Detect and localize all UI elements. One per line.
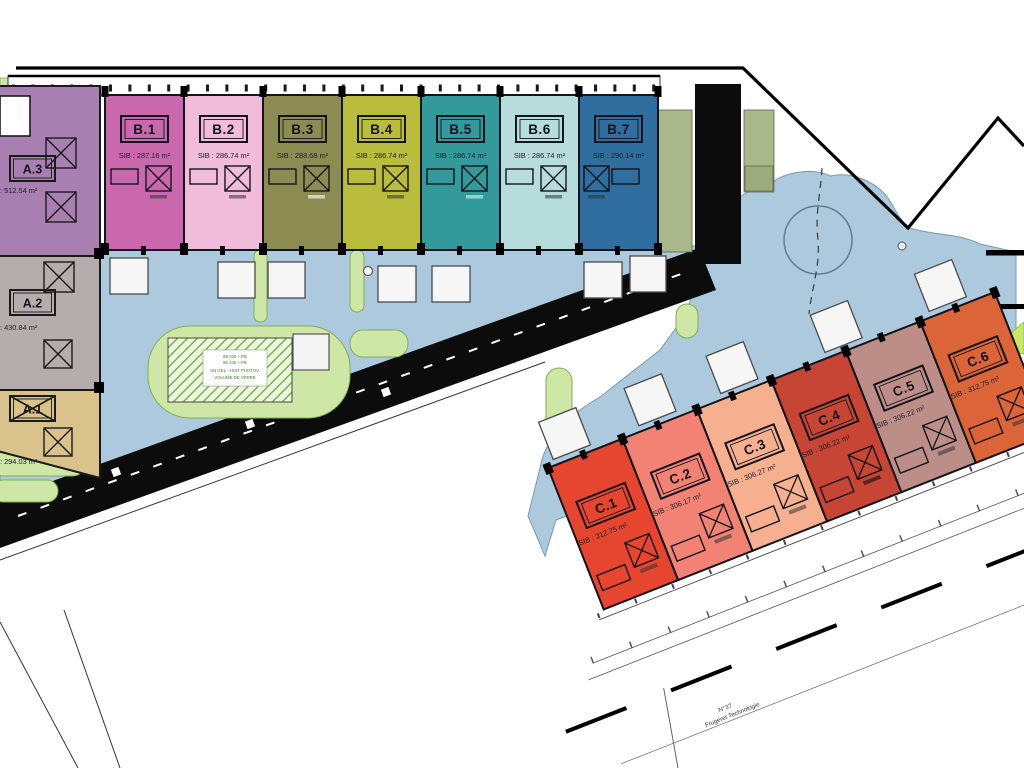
unit-b3: B.3 SIB : 288.68 m²: [263, 95, 342, 250]
unit-b4-area: SIB : 286.74 m²: [356, 151, 408, 160]
dock-canopy: [293, 334, 329, 370]
site-plan-page: 88 030 + PB 86 235 + PB UN GEL - HUIT PH…: [0, 0, 1024, 768]
unit-b6: B.6 SIB : 286.74 m²: [500, 95, 579, 250]
unit-b1-floor: [105, 95, 184, 250]
shaft-tag: [545, 195, 562, 199]
unit-b3-floor: [263, 95, 342, 250]
unit-a3-label: A.3: [23, 163, 43, 177]
shaft-tag: [308, 195, 325, 199]
unit-a2-label: A.2: [23, 297, 43, 311]
unit-b6-floor: [500, 95, 579, 250]
dock-canopy: [110, 258, 148, 294]
green-pill-sw2: [0, 480, 58, 502]
unit-b1: B.1 SIB : 287.16 m²: [105, 95, 184, 250]
site-plan-drawing: 88 030 + PB 86 235 + PB UN GEL - HUIT PH…: [0, 0, 1024, 768]
hatch-note-line: VOLUME DE VERRE: [214, 375, 255, 380]
green-strip: [350, 250, 364, 312]
column-mark: [94, 382, 104, 393]
unit-b1-area: SIB : 287.16 m²: [119, 151, 171, 160]
unit-b5-floor: [421, 95, 500, 250]
shaft-tag: [150, 195, 167, 199]
hatch-note-line: 88 030 + PB: [223, 354, 247, 359]
unit-b4-label: B.4: [370, 122, 393, 137]
unit-b5: B.5 SIB : 286.74 m²: [421, 95, 500, 250]
hatch-note-line: 86 235 + PB: [223, 360, 247, 365]
hatch-note-line: UN GEL - HUIT PHOTOV.: [210, 368, 260, 373]
unit-b4: B.4 SIB : 286.74 m²: [342, 95, 421, 250]
unit-b3-label: B.3: [291, 122, 314, 137]
shaft-tag: [387, 195, 404, 199]
green-island-small: [350, 330, 408, 357]
dock-canopy: [378, 266, 416, 302]
dock-canopy: [268, 262, 305, 298]
unit-b7-label: B.7: [607, 122, 630, 137]
building-b: B.1 SIB : 287.16 m² B.2 SIB : 286.74 m²: [101, 86, 662, 255]
unit-b6-area: SIB : 286.74 m²: [514, 151, 566, 160]
building-a: A.3 SIB : 512.54 m² A.2 SIB : 430.84 m² …: [0, 86, 104, 478]
dock-canopy: [630, 256, 666, 292]
road-north: [695, 84, 741, 264]
dock-canopy: [218, 262, 255, 298]
manhole-circle: [364, 267, 373, 276]
green-strip: [254, 250, 267, 322]
shaft-tag: [588, 195, 605, 199]
shaft-tag: [466, 195, 483, 199]
green-block-small: [745, 166, 773, 191]
green-pill-c2: [676, 304, 698, 338]
shaft-tag: [229, 195, 246, 199]
unit-b3-area: SIB : 288.68 m²: [277, 151, 329, 160]
manhole-circle: [898, 242, 906, 250]
unit-b6-label: B.6: [528, 122, 551, 137]
unit-b1-label: B.1: [133, 122, 156, 137]
unit-b2: B.2 SIB : 286.74 m²: [184, 95, 263, 250]
unit-b7: B.7 SIB : 290.14 m²: [579, 95, 658, 250]
unit-a2-area: SIB : 430.84 m²: [0, 323, 38, 332]
unit-b5-label: B.5: [449, 122, 472, 137]
green-block-west: [656, 110, 692, 252]
boundary-dash: [986, 250, 1024, 256]
a3-inner-room: [0, 96, 30, 136]
unit-b4-floor: [342, 95, 421, 250]
unit-b2-label: B.2: [212, 122, 235, 137]
unit-b5-area: SIB : 286.74 m²: [435, 151, 487, 160]
unit-a1-area: SIB : 294.03 m²: [0, 457, 38, 466]
unit-b7-area: SIB : 290.14 m²: [593, 151, 645, 160]
unit-b2-area: SIB : 286.74 m²: [198, 151, 250, 160]
dock-canopy: [584, 262, 622, 298]
unit-a3-area: SIB : 512.54 m²: [0, 186, 38, 195]
unit-b2-floor: [184, 95, 263, 250]
dock-canopy: [432, 266, 470, 302]
